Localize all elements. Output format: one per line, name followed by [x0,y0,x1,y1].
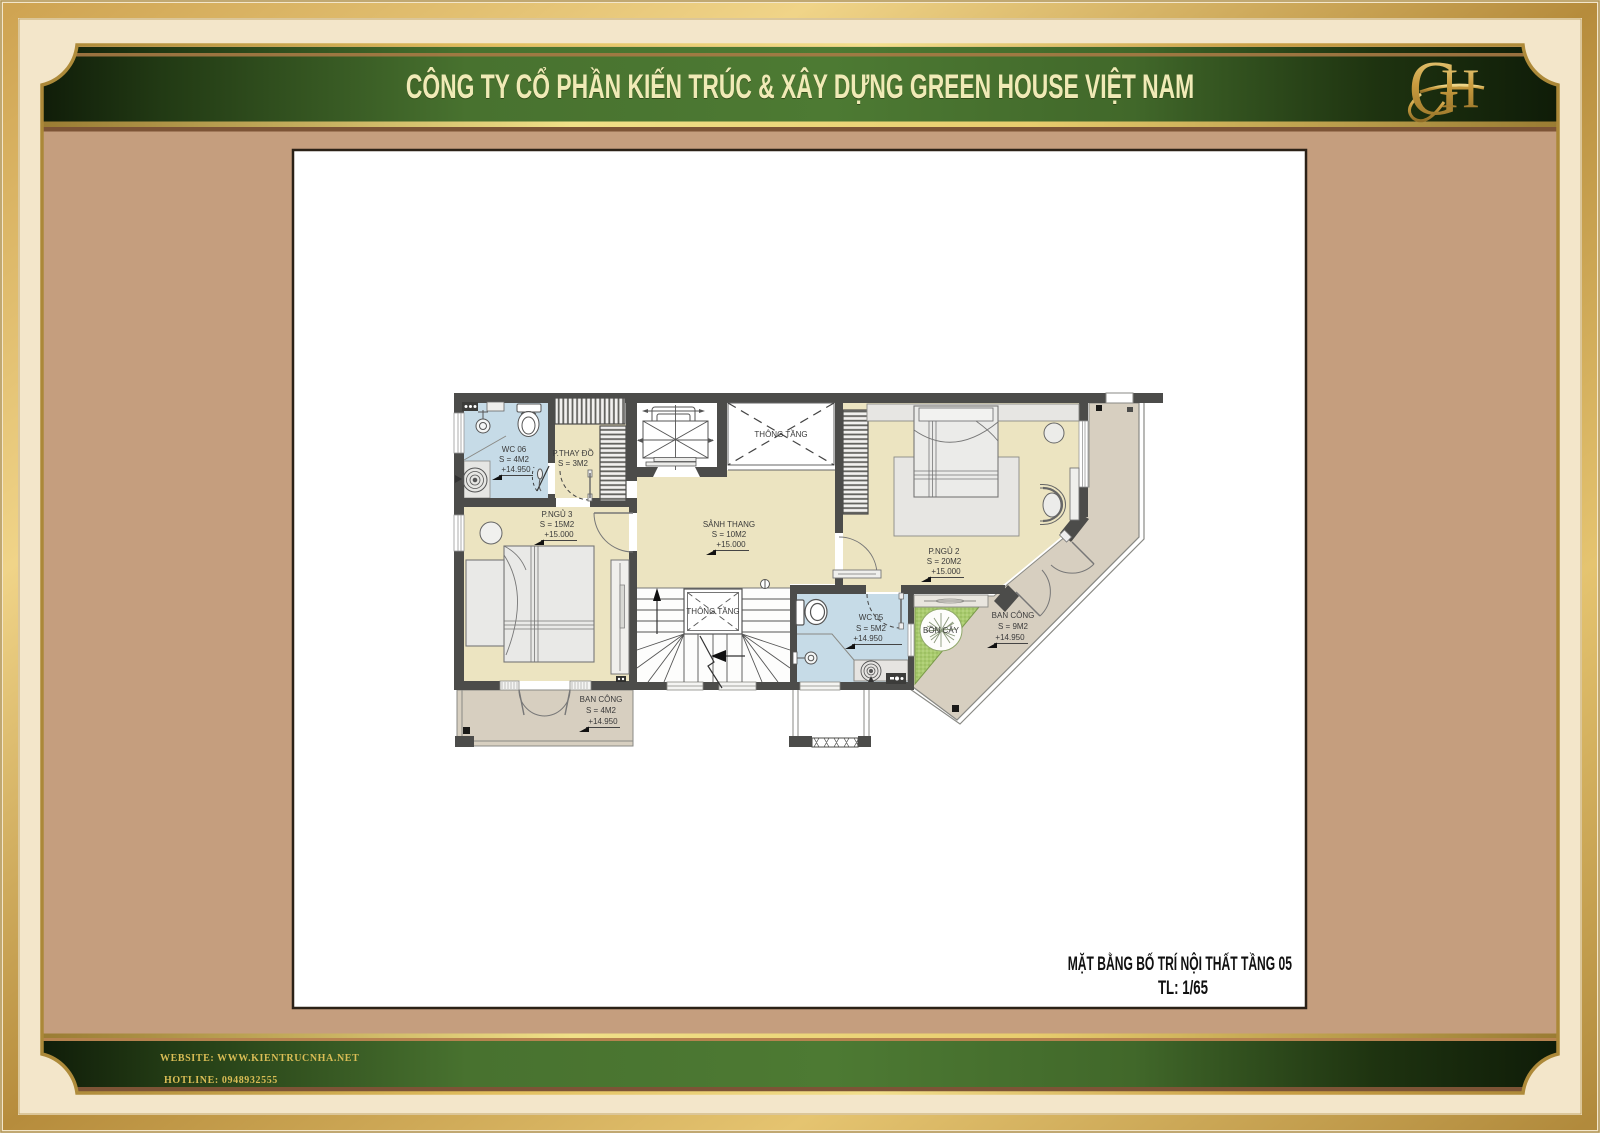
svg-text:P.NGỦ 3: P.NGỦ 3 [542,510,574,519]
svg-text:MẶT BẰNG BỐ TRÍ NỘI THẤT TẦNG: MẶT BẰNG BỐ TRÍ NỘI THẤT TẦNG 05 [1068,951,1292,975]
svg-text:+14.950: +14.950 [588,717,618,726]
svg-text:BAN CÔNG: BAN CÔNG [992,611,1035,620]
svg-text:P.THAY ĐỒ: P.THAY ĐỒ [552,448,593,458]
svg-text:WC 05: WC 05 [859,613,884,622]
svg-text:WC 06: WC 06 [502,445,527,454]
svg-text:S = 15M2: S = 15M2 [540,520,575,529]
svg-text:+14.950: +14.950 [995,633,1025,642]
svg-text:S = 9M2: S = 9M2 [998,622,1029,631]
svg-text:BỒN CÂY: BỒN CÂY [923,625,960,635]
svg-text:S = 4M2: S = 4M2 [586,706,617,715]
svg-text:WEBSITE: WWW.KIENTRUCNHA.NET: WEBSITE: WWW.KIENTRUCNHA.NET [160,1053,359,1064]
svg-text:TL: 1/65: TL: 1/65 [1158,976,1208,998]
svg-text:+15.000: +15.000 [544,530,574,539]
svg-text:S = 20M2: S = 20M2 [927,557,962,566]
svg-text:+15.000: +15.000 [716,540,746,549]
svg-text:HOTLINE: 0948932555: HOTLINE: 0948932555 [164,1075,278,1086]
svg-text:+15.000: +15.000 [931,567,961,576]
svg-text:CÔNG TY CỔ PHẦN KIẾN TRÚC & XÂ: CÔNG TY CỔ PHẦN KIẾN TRÚC & XÂY DỰNG GRE… [406,66,1194,106]
svg-text:S = 3M2: S = 3M2 [558,459,589,468]
svg-text:P.NGỦ 2: P.NGỦ 2 [929,547,961,556]
svg-text:THÔNG TẦNG: THÔNG TẦNG [754,429,807,439]
svg-text:SẢNH THANG: SẢNH THANG [703,520,755,529]
svg-text:S = 10M2: S = 10M2 [712,530,747,539]
svg-text:THÔNG TẦNG: THÔNG TẦNG [686,606,739,616]
svg-text:+14.950: +14.950 [501,465,531,474]
svg-text:+14.950: +14.950 [853,634,883,643]
svg-text:S = 5M2: S = 5M2 [856,624,887,633]
svg-text:H: H [1441,57,1479,120]
svg-text:BAN CÔNG: BAN CÔNG [580,695,623,704]
svg-text:S = 4M2: S = 4M2 [499,455,530,464]
